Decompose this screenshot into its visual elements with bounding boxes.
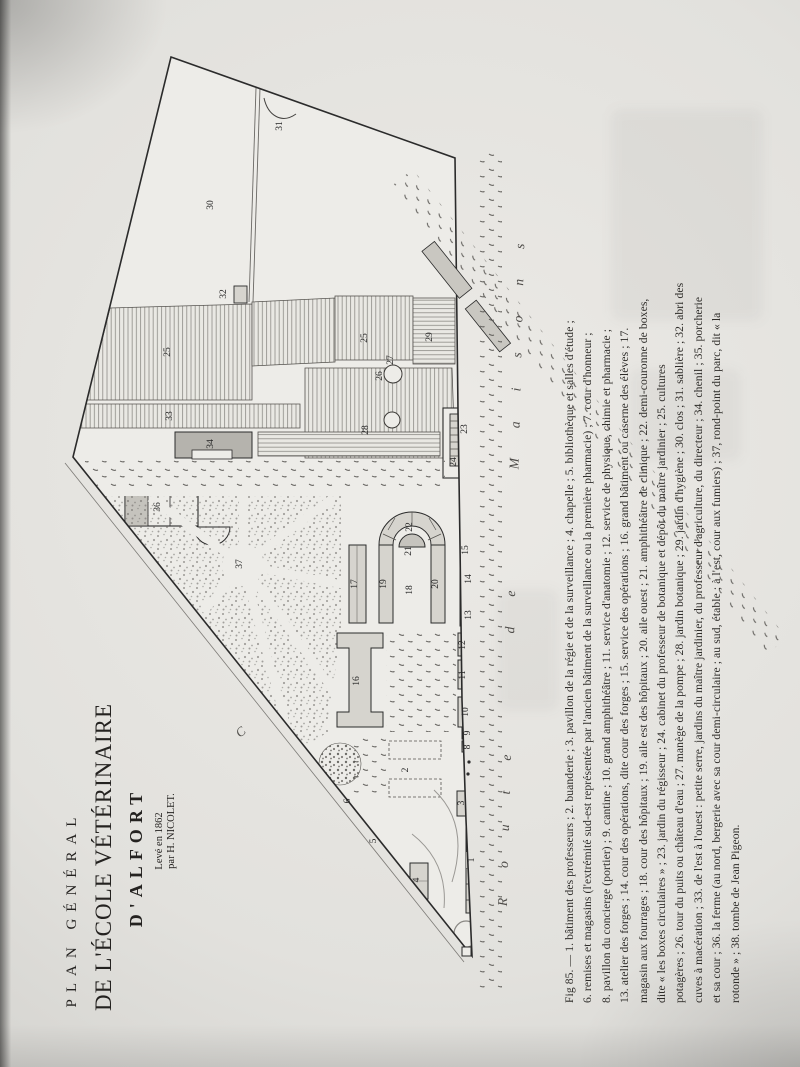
plan-number-label: 28 <box>361 425 371 435</box>
plan-title-line3: D'ALFORT <box>126 692 147 1022</box>
plan-title-surveyed: Levé en 1862 <box>154 676 165 1006</box>
plan-number-label: 25 <box>360 333 370 343</box>
plan-number-label: 37 <box>235 559 245 569</box>
figure-caption: Fig 85. — 1. bâtiment des professeurs ; … <box>561 28 745 1003</box>
plan-number-label: 29 <box>425 332 435 342</box>
plan-number-label: 27 <box>386 355 396 365</box>
plan-number-label: 13 <box>464 610 474 620</box>
plan-number-label: 8 <box>463 744 473 749</box>
plan-number-label: 30 <box>206 200 216 210</box>
plan-number-label: 36 <box>153 502 163 512</box>
plan-number-label: 6 <box>343 798 353 803</box>
gate-post <box>466 772 469 775</box>
entrance-gate <box>462 947 471 956</box>
caption-line: et sa cour ; 36. la ferme (au nord, berg… <box>708 28 726 1003</box>
garden-plot-29 <box>413 298 455 364</box>
plan-number-label: 15 <box>461 545 471 555</box>
building-32 <box>234 286 247 303</box>
caption-line: cuves à macération ; 33. de l'est à l'ou… <box>690 28 708 1003</box>
plan-number-label: 3 <box>457 800 467 805</box>
bassin <box>384 412 400 428</box>
plan-number-label: 24 <box>449 457 459 467</box>
plan-number-label: 5 <box>369 838 379 843</box>
plan-number-label: 10 <box>461 707 471 717</box>
plan-number-label: 31 <box>275 121 285 131</box>
cour-honneur-oval <box>454 921 478 947</box>
plan-number-label: 16 <box>352 676 362 686</box>
caption-line: Fig 85. — 1. bâtiment des professeurs ; … <box>561 28 579 1003</box>
plan-number-label: 20 <box>431 579 441 589</box>
caption-line: 8. pavillon du concierge (portier) ; 9. … <box>598 28 616 1003</box>
plan-number-label: 21 <box>404 546 414 556</box>
tour-du-puits <box>384 365 402 383</box>
plan-number-label: 9 <box>463 730 473 735</box>
plan-number-label: 4 <box>412 877 422 882</box>
tree-court <box>386 633 456 732</box>
plan-number-label: 1 <box>467 857 477 862</box>
plan-title-line1: PLAN GÉNÉRAL <box>64 744 81 1067</box>
garden-strip-33 <box>80 404 300 428</box>
plan-number-label: 23 <box>460 424 470 434</box>
caption-line: dite « les boxes circulaires » ; 23. jar… <box>653 28 671 1003</box>
plan-number-label: 14 <box>464 574 474 584</box>
caption-line: 6. remises et magasins (l'extrémité sud-… <box>579 28 597 1003</box>
scanned-book-page: Route de Maisons C 303132252529272628333… <box>0 0 800 1067</box>
side-road-letter: C <box>232 723 249 740</box>
gate-post <box>467 760 470 763</box>
building-34-court <box>192 450 232 459</box>
plan-title-author: par H. NICOLET. <box>166 666 177 996</box>
plan-title-line2: DE L'ÉCOLE VÉTÉRINAIRE <box>91 692 117 1022</box>
plan-number-label: 2 <box>401 767 411 772</box>
plan-number-label: 22 <box>405 522 415 532</box>
plan-number-label: 12 <box>458 640 468 650</box>
plan-number-label: 33 <box>165 411 175 421</box>
plan-number-label: 34 <box>206 439 216 449</box>
garden-strip <box>258 432 440 456</box>
caption-line: 13. atelier des forges ; 14. cour des op… <box>616 28 634 1003</box>
plan-number-label: 18 <box>405 585 415 595</box>
plan-title-block: PLAN GÉNÉRAL DE L'ÉCOLE VÉTÉRINAIRE D'AL… <box>58 692 208 1022</box>
garden-plot-25b <box>335 296 413 360</box>
plan-number-label: 25 <box>163 347 173 357</box>
plan-number-label: 32 <box>219 289 229 299</box>
caption-line: potagères ; 26. tour du puits ou château… <box>671 28 689 1003</box>
tree-clump <box>319 743 361 785</box>
plan-number-label: 26 <box>375 371 385 381</box>
plan-number-label: 19 <box>379 579 389 589</box>
caption-line: magasin aux fourrages ; 18. cour des hôp… <box>635 28 653 1003</box>
caption-line: rotonde » ; 38. tombe de Jean Pigeon. <box>727 28 745 1003</box>
plan-number-label: 11 <box>458 670 468 679</box>
garden-plot <box>252 298 335 366</box>
tree-row-band <box>85 460 445 486</box>
plan-number-label: 17 <box>350 579 360 589</box>
